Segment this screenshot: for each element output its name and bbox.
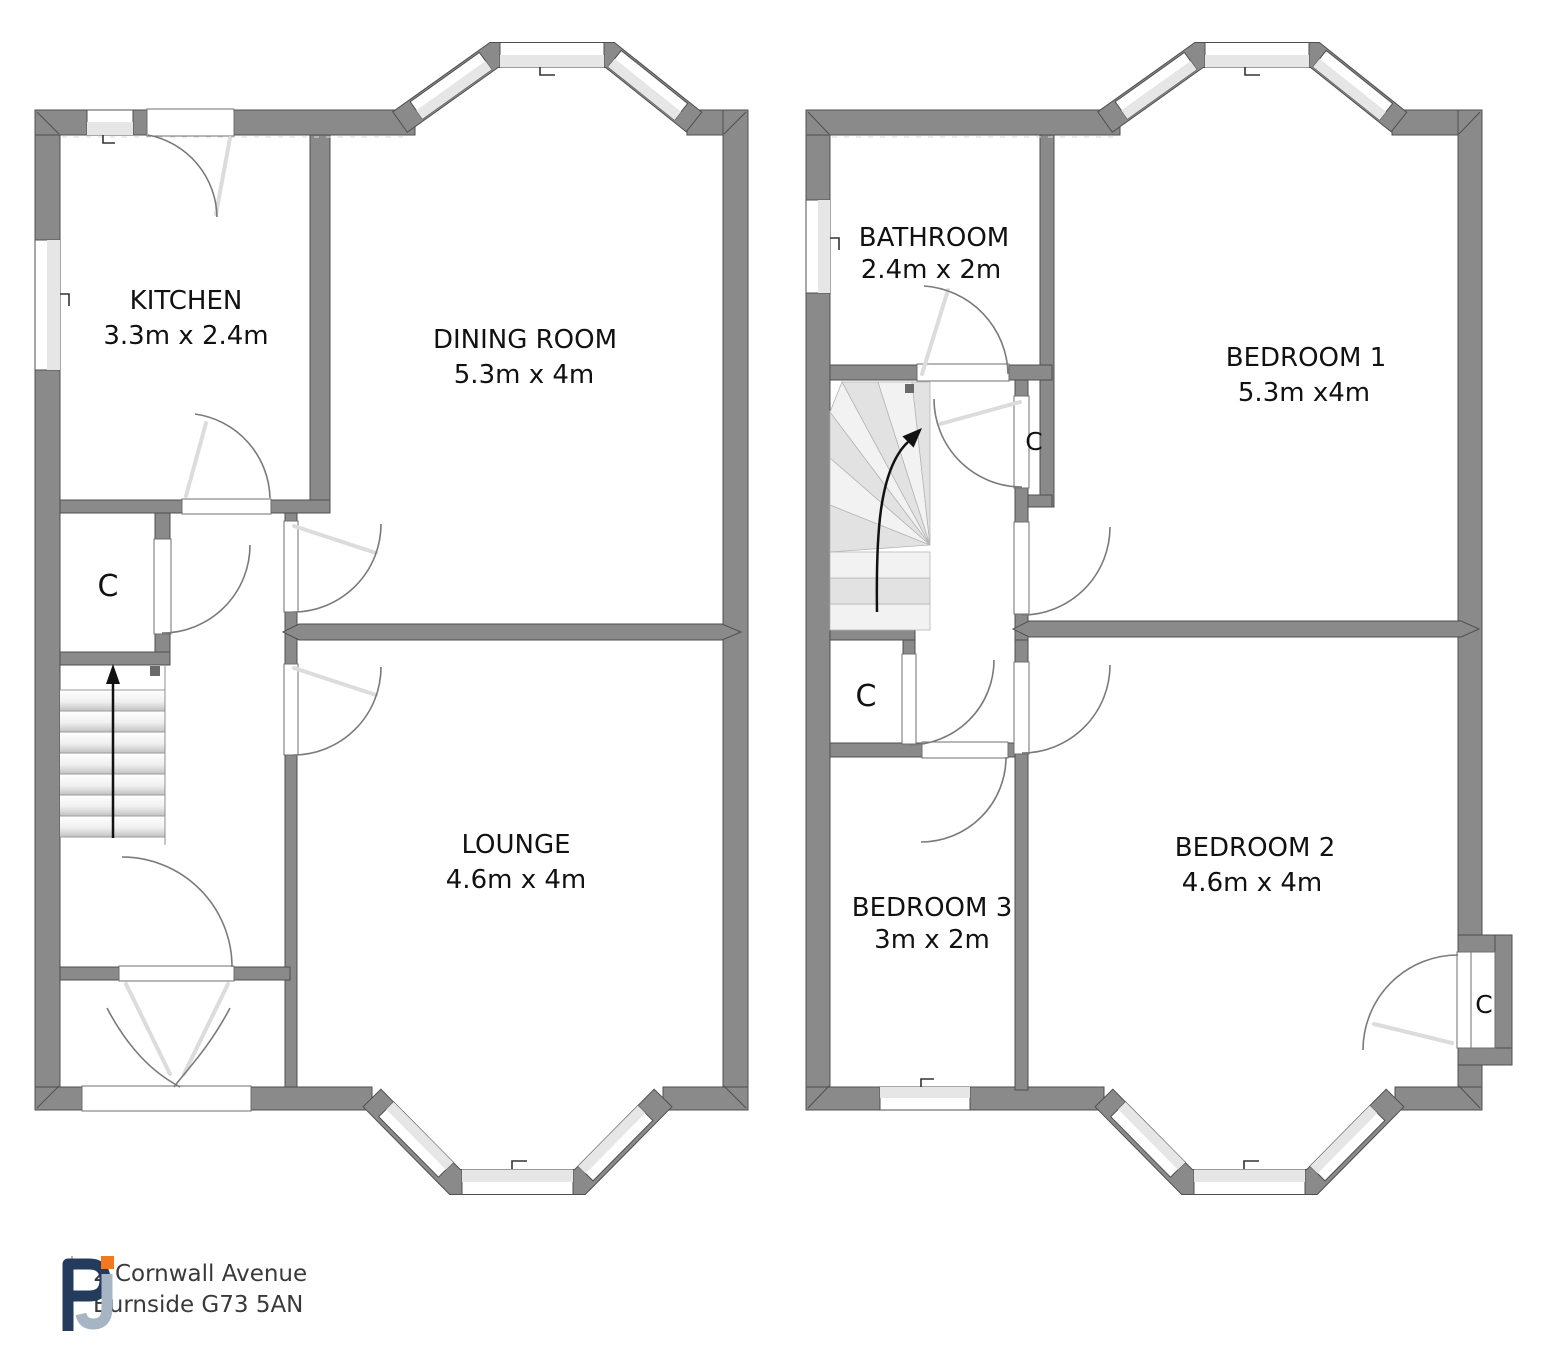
logo-orange-square <box>101 1256 114 1269</box>
landing-closet-label: C <box>1025 427 1042 456</box>
bathroom-dims: 2.4m x 2m <box>861 255 1001 285</box>
floorplan-page: KITCHEN 3.3m x 2.4m DINING ROOM 5.3m x 4… <box>0 0 1554 1372</box>
ground-floor-plan: KITCHEN 3.3m x 2.4m DINING ROOM 5.3m x 4… <box>35 43 748 1195</box>
bedroom1-bay-window-left <box>1115 52 1196 118</box>
bedroom3-dims: 3m x 2m <box>874 925 990 955</box>
bedroom1-bay-window-right <box>1313 51 1393 120</box>
bedroom1-door-opening <box>1014 522 1029 614</box>
first-floor-doors <box>909 286 1458 1050</box>
bedroom2-dims: 4.6m x 4m <box>1182 868 1322 898</box>
dining-bay-window-right <box>608 51 688 120</box>
ground-floor-doors <box>107 135 381 1087</box>
bedroom1-label: BEDROOM 1 <box>1226 343 1387 373</box>
bathroom-label: BATHROOM <box>859 223 1009 253</box>
dining-door-opening <box>284 521 298 612</box>
bathroom-door-opening <box>917 364 1009 381</box>
stair-newel-marker-upper <box>905 384 914 393</box>
lounge-dims: 4.6m x 4m <box>446 865 586 895</box>
footer: 2 Cornwall Avenue Burnside G73 5AN <box>55 1256 307 1324</box>
dining-lounge-divider-wall <box>283 624 741 640</box>
ground-floor-windows <box>35 43 688 1195</box>
bedroom1-dims: 5.3m x4m <box>1238 378 1370 408</box>
closet-door-opening <box>154 539 171 634</box>
dining-room-dims: 5.3m x 4m <box>454 360 594 390</box>
bedroom2-bay-window-left <box>1111 1102 1186 1177</box>
kitchen-dims: 3.3m x 2.4m <box>103 321 268 351</box>
kitchen-label: KITCHEN <box>130 286 243 316</box>
dining-bay-window-left <box>410 52 491 118</box>
dining-door-arc <box>293 524 381 612</box>
bedroom3-label: BEDROOM 3 <box>852 893 1013 923</box>
bedroom2-label: BEDROOM 2 <box>1175 833 1336 863</box>
bedroom2-door-arc <box>1022 665 1110 753</box>
lounge-door-opening <box>284 664 298 755</box>
bedroom3-door-opening <box>922 742 1008 758</box>
first-floor-stairs <box>830 382 930 630</box>
ground-floor-walls <box>35 43 748 1195</box>
dining-room-label: DINING ROOM <box>433 325 617 355</box>
floorplan-drawing: KITCHEN 3.3m x 2.4m DINING ROOM 5.3m x 4… <box>0 0 1554 1372</box>
bedroom3-door-arc <box>921 757 1006 842</box>
lounge-label: LOUNGE <box>461 830 570 860</box>
bedroom2-bay-window-right <box>1310 1106 1385 1181</box>
first-floor-door-openings <box>902 364 1495 1048</box>
bedroom2-closet-door-arc <box>1363 955 1458 1050</box>
kitchen-hall-door-opening <box>182 499 271 514</box>
first-closet-door-opening <box>902 654 916 744</box>
lounge-bay-window-right <box>578 1106 653 1181</box>
ground-floor-door-openings <box>82 109 298 1111</box>
first-floor-plan: BATHROOM 2.4m x 2m BEDROOM 1 5.3m x4m BE… <box>806 43 1512 1195</box>
first-closet-label: C <box>856 679 877 714</box>
stair-newel-marker <box>150 666 160 676</box>
first-closet-door-arc <box>909 660 994 745</box>
bedroom2-closet-label: C <box>1475 990 1492 1019</box>
vestibule-door-opening <box>119 966 234 981</box>
pj-logo-icon <box>55 1256 135 1334</box>
front-entrance-opening <box>82 1086 251 1111</box>
kitchen-back-door-arc <box>148 135 217 217</box>
kitchen-back-door-opening <box>147 109 234 136</box>
bedroom1-door-arc <box>1022 527 1110 615</box>
ground-closet-label: C <box>98 569 119 604</box>
hall-vestibule-door-arc <box>122 857 232 967</box>
lounge-bay-window-left <box>379 1102 454 1177</box>
closet-door-arc <box>162 545 250 633</box>
ground-floor-stairs <box>60 664 165 845</box>
bedroom2-door-opening <box>1014 662 1029 754</box>
bed1-bed2-divider-wall <box>1013 621 1479 637</box>
